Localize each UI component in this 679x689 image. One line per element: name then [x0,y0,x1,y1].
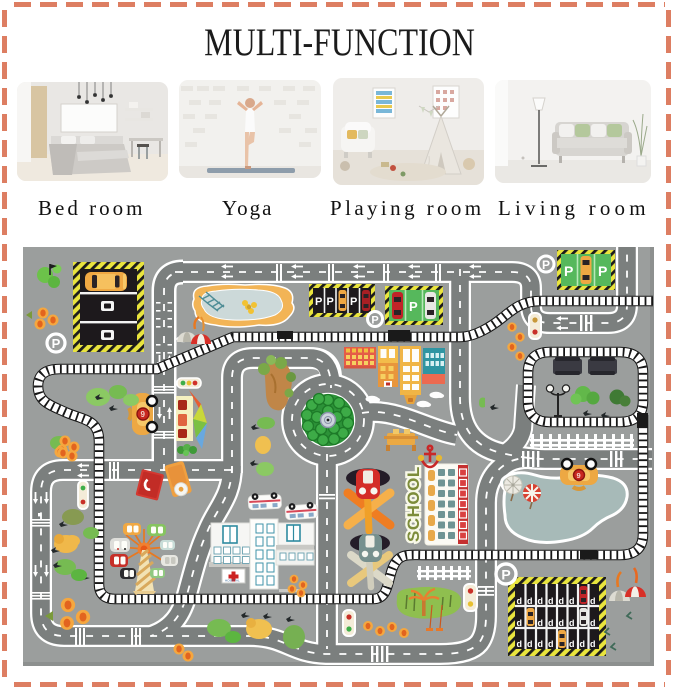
svg-text:d: d [517,639,523,649]
svg-text:9: 9 [577,471,581,480]
svg-text:d: d [569,596,575,606]
svg-text:d: d [538,596,544,606]
svg-text:d: d [580,639,586,649]
svg-text:d: d [590,596,596,606]
svg-text:d: d [548,596,554,606]
svg-text:9: 9 [141,410,146,419]
svg-text:d: d [548,618,554,628]
svg-text:d: d [538,618,544,628]
svg-text:d: d [590,639,596,649]
svg-text:P: P [327,296,334,308]
svg-text:d: d [527,639,533,649]
svg-text:P: P [371,315,378,327]
svg-text:P: P [409,299,418,314]
svg-text:P: P [542,258,550,272]
svg-text:SCHOOL: SCHOOL [404,466,423,542]
svg-text:d: d [538,639,544,649]
svg-text:P: P [52,336,61,351]
svg-text:d: d [590,618,596,628]
svg-text:d: d [569,639,575,649]
svg-text:P: P [501,567,510,583]
svg-text:d: d [527,596,533,606]
svg-text:P: P [350,296,357,308]
svg-text:d: d [517,618,523,628]
svg-text:d: d [559,596,565,606]
svg-text:P: P [564,263,573,279]
svg-text:d: d [569,618,575,628]
svg-text:d: d [559,618,565,628]
svg-text:HOSPITAL: HOSPITAL [225,579,240,583]
svg-text:d: d [517,596,523,606]
svg-text:d: d [548,639,554,649]
svg-text:P: P [315,296,322,308]
svg-text:P: P [598,263,607,279]
